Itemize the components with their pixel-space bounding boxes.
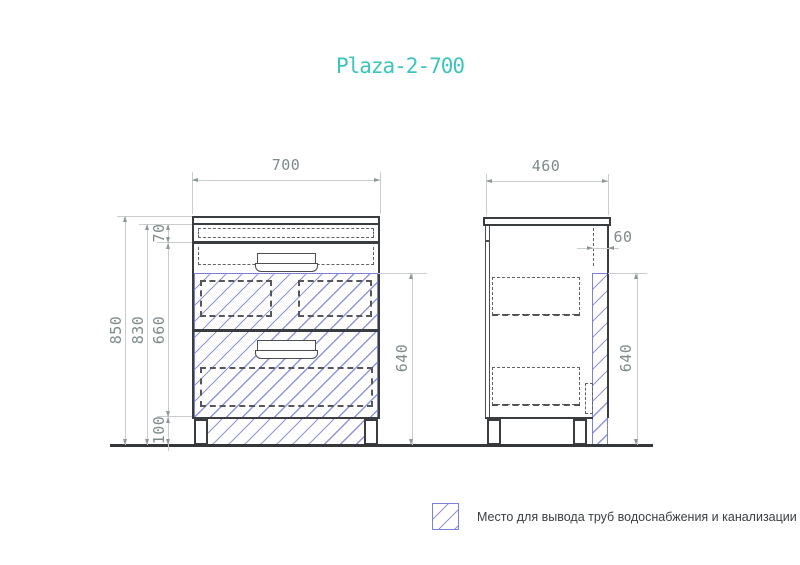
front-drain-cutout-left [200, 280, 272, 317]
ext-line-side-pipe-zone-top [608, 273, 647, 274]
arrow-icon [608, 246, 614, 250]
side-front-edge-tick [485, 240, 490, 242]
dim-label-front-pipe-zone: 640 [394, 336, 410, 380]
front-left-edge [192, 225, 194, 417]
front-drain-cutout-right [298, 280, 372, 317]
arrow-icon [145, 439, 149, 445]
front-drawer1-handle-lip [255, 263, 318, 272]
technical-drawing-canvas: Plaza-2-700 [0, 0, 800, 565]
arrow-icon [602, 179, 608, 183]
legend-text: Место для вывода труб водоснабжения и ка… [477, 510, 797, 524]
dim-label-side-depth: 460 [522, 158, 570, 174]
front-drawer-divider-line [192, 329, 380, 332]
dim-label-side-pipe-zone: 640 [618, 336, 634, 380]
arrow-icon [409, 273, 413, 279]
ext-line-front-pipe-zone-top [378, 273, 427, 274]
dim-label-front-width: 700 [262, 157, 310, 173]
arrow-icon [486, 179, 492, 183]
front-top-section-dashed-inset [198, 228, 374, 238]
dim-line-side-pipe-zone [637, 273, 638, 445]
front-drawer1-handle [257, 253, 316, 264]
arrow-icon [123, 439, 127, 445]
arrow-icon [409, 439, 413, 445]
front-drawer1-hidden-edge-right [373, 247, 374, 265]
side-drawer1-hidden-bottom [492, 314, 580, 316]
arrow-icon [145, 224, 149, 230]
dim-line-side-depth [486, 181, 608, 182]
pipe-zone-hatch-swatch-icon [432, 503, 459, 530]
front-top-rail-line [192, 241, 380, 244]
arrow-icon [374, 178, 380, 182]
front-leg-right [364, 419, 378, 445]
dim-label-legs: 100 [151, 408, 167, 452]
side-leg-front [487, 419, 501, 445]
front-drawer1-hidden-edge-left [198, 247, 199, 265]
arrow-icon [192, 178, 198, 182]
side-back-edge [607, 226, 609, 418]
side-back-offset-hidden-line [593, 228, 594, 266]
front-leg-left [194, 419, 208, 445]
dim-line-front-pipe-zone [412, 273, 413, 445]
dim-line-front-width [192, 180, 380, 181]
floor-line [110, 444, 653, 447]
dim-label-top-section: 70 [151, 211, 167, 255]
side-drawer2-hidden-box [492, 367, 580, 405]
front-pipe-zone-hatch-bottom [208, 418, 364, 445]
drawing-title: Plaza-2-700 [300, 54, 500, 78]
front-drawer2-handle-lip [255, 350, 318, 359]
side-front-edge [485, 226, 490, 418]
arrow-icon [634, 273, 638, 279]
side-drawer2-hidden-bottom [492, 404, 580, 406]
side-drawer1-hidden-box [492, 277, 580, 315]
arrow-icon [123, 216, 127, 222]
front-countertop [192, 216, 380, 225]
side-back-corner-hidden-box [585, 383, 593, 414]
dim-label-body-height: 830 [130, 308, 146, 352]
front-drawer2-handle [257, 340, 316, 351]
side-countertop [483, 217, 611, 226]
arrow-icon [587, 246, 593, 250]
arrow-icon [634, 439, 638, 445]
front-bottom-line [192, 417, 380, 420]
dim-label-drawer-section: 660 [151, 308, 167, 352]
front-drawer2-hidden-box [200, 367, 373, 407]
front-right-edge [378, 225, 380, 417]
side-leg-back [573, 419, 587, 445]
dim-label-pipe-zone-depth: 60 [609, 229, 637, 245]
dim-label-total-height: 850 [108, 308, 124, 352]
